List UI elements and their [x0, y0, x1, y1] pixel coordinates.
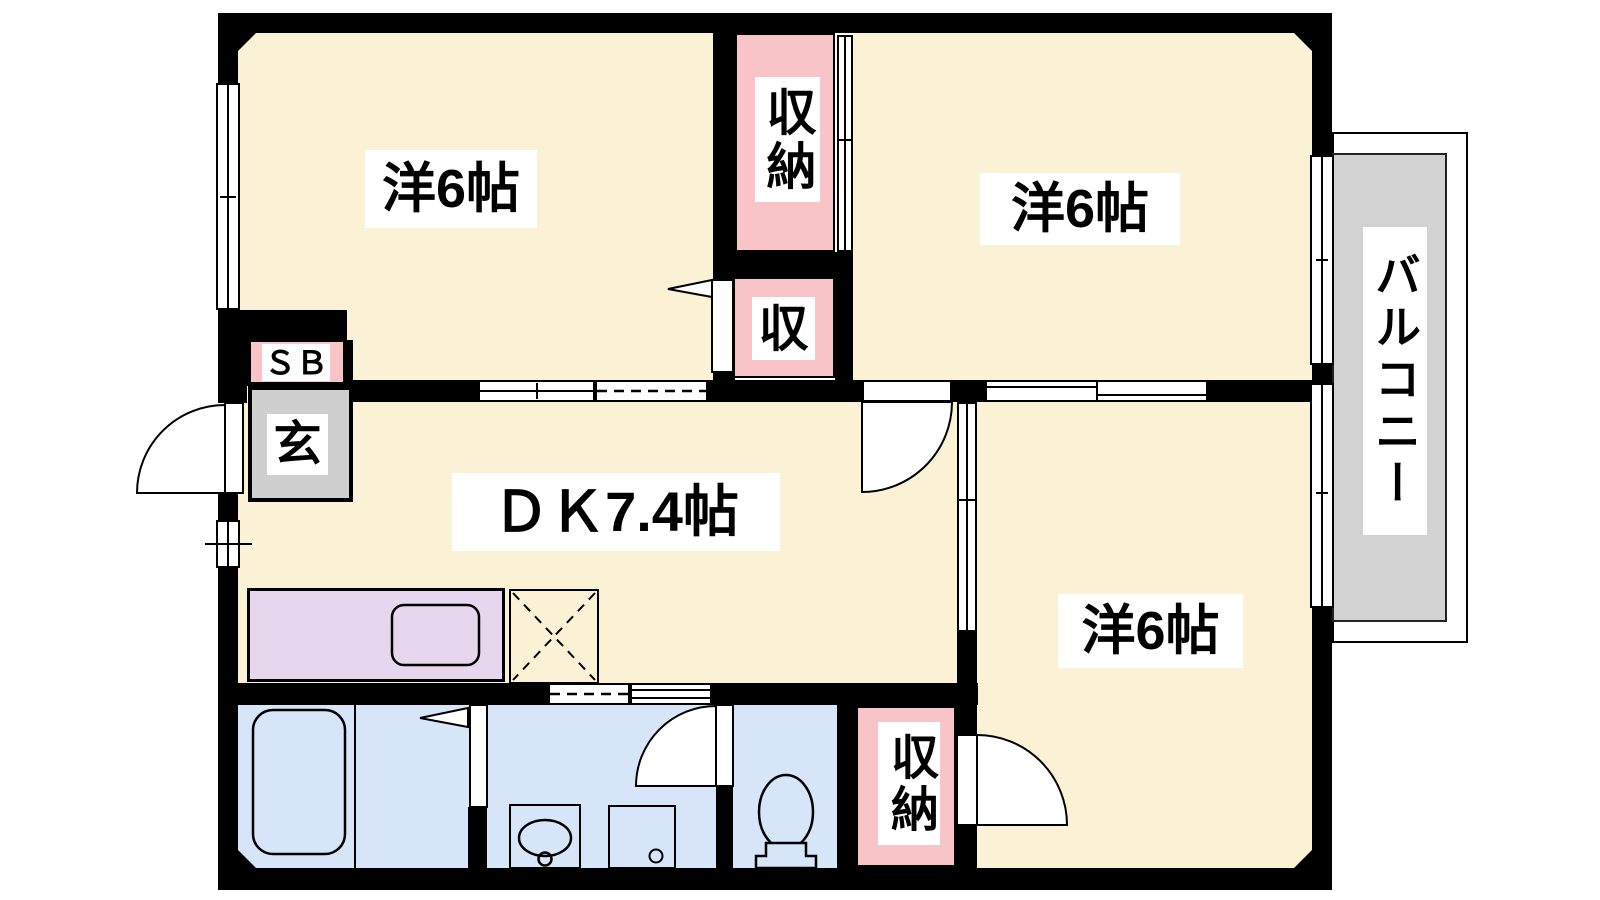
sliding-door-closet-top [837, 35, 853, 252]
balcony-label: バルコニー [1363, 227, 1427, 535]
partition-dk-bottom-right-room [957, 402, 977, 632]
room-top-left-label: 洋6帖 [365, 150, 537, 228]
wall-bottom [218, 868, 1332, 890]
closet-bottom-label: 収納 [878, 722, 940, 845]
entrance-label: 玄 [267, 414, 328, 475]
window-left-small [216, 520, 240, 568]
bath-washroom-toilet-floor [238, 705, 837, 868]
wall-closet-left [713, 33, 735, 382]
closet-mid-label: 収 [752, 297, 815, 360]
wall-toilet-right [837, 705, 855, 868]
door-opening-top-right-room [862, 380, 952, 402]
wall-entry-jog-b [218, 340, 247, 403]
window-right-upper [1310, 155, 1334, 365]
wall-bath-door-lower [468, 807, 487, 868]
entry-door-swing [137, 405, 225, 493]
opening-dashed-dk-bottom [548, 683, 630, 705]
opening-dashed-dk-top [595, 380, 708, 402]
wall-closet-mid-right [835, 277, 853, 380]
closet-top-label: 収納 [755, 77, 820, 202]
room-bottom-right-label: 洋6帖 [1058, 594, 1243, 668]
window-left-large [216, 83, 240, 310]
wall-br-post-lower [957, 825, 977, 868]
wall-entry-jog-a [218, 310, 347, 340]
wall-top [218, 13, 1332, 33]
wall-closet-divider [713, 252, 853, 277]
kitchen-counter [247, 588, 505, 682]
room-top-right-label: 洋6帖 [980, 173, 1180, 245]
entry-door-opening [218, 403, 238, 493]
window-right-lower [1310, 383, 1334, 608]
wall-br-post-upper [957, 632, 977, 735]
sliding-door-dk-top [478, 380, 595, 402]
shoe-box-label: ＳＢ [262, 344, 330, 381]
wall-toilet-divider-lower [716, 786, 733, 868]
floor-plan: 洋6帖 洋6帖 洋6帖 ＤＫ7.4帖 収納 収 収納 ＳＢ 玄 バルコニー [0, 0, 1600, 900]
dining-kitchen-label: ＤＫ7.4帖 [452, 473, 780, 551]
sliding-door-between-rooms [985, 380, 1208, 402]
sliding-door-washroom [630, 683, 712, 705]
